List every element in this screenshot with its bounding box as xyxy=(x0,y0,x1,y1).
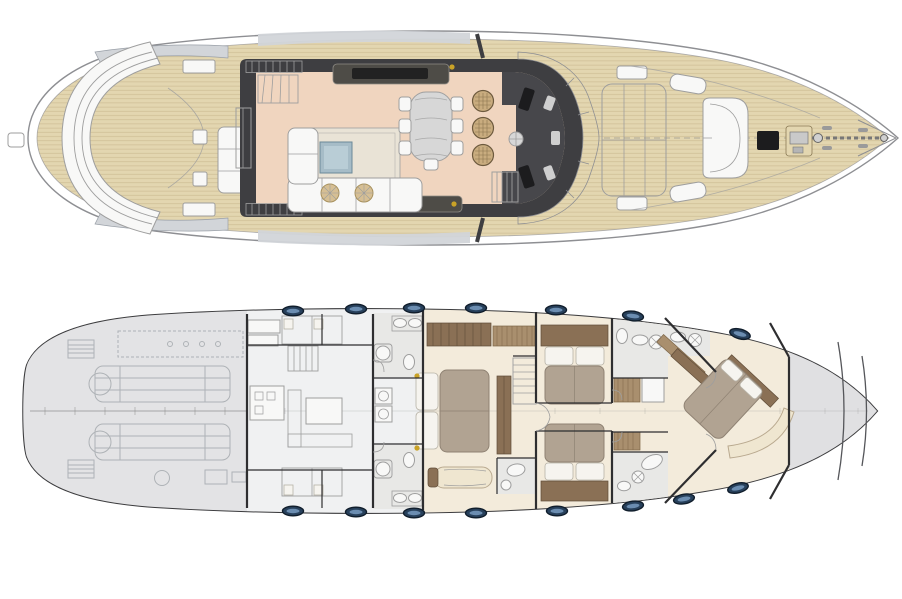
deck-hatch xyxy=(757,131,779,150)
cleat-icon xyxy=(858,128,868,132)
lamp-icon xyxy=(449,64,454,69)
toilet-icon xyxy=(617,329,628,344)
cleat-icon xyxy=(822,146,832,150)
yacht-floorplan-image xyxy=(0,0,902,599)
swim-ladder xyxy=(8,133,24,147)
cleat-icon xyxy=(858,144,868,148)
bed-lamp-icon xyxy=(414,445,419,450)
cleat-icon xyxy=(822,126,832,130)
main-deck xyxy=(8,31,898,246)
laundry xyxy=(250,386,284,420)
dryer-icon xyxy=(375,406,392,422)
sink-icon xyxy=(618,481,631,491)
lower-deck xyxy=(22,303,884,518)
bar-stools xyxy=(473,91,494,166)
washer-icon xyxy=(375,388,392,404)
sink-icon xyxy=(632,335,648,345)
toilet-icon xyxy=(501,480,511,490)
master-bench xyxy=(428,467,492,488)
cabinet xyxy=(642,378,664,402)
dining-table xyxy=(410,92,452,161)
guest-cabin-bottom xyxy=(541,424,608,501)
coffee-table xyxy=(320,142,352,173)
tv-console xyxy=(333,64,449,84)
deck-plan-svg xyxy=(0,0,902,599)
master-wardrobe xyxy=(427,323,491,346)
anchor-windlass xyxy=(786,126,812,156)
